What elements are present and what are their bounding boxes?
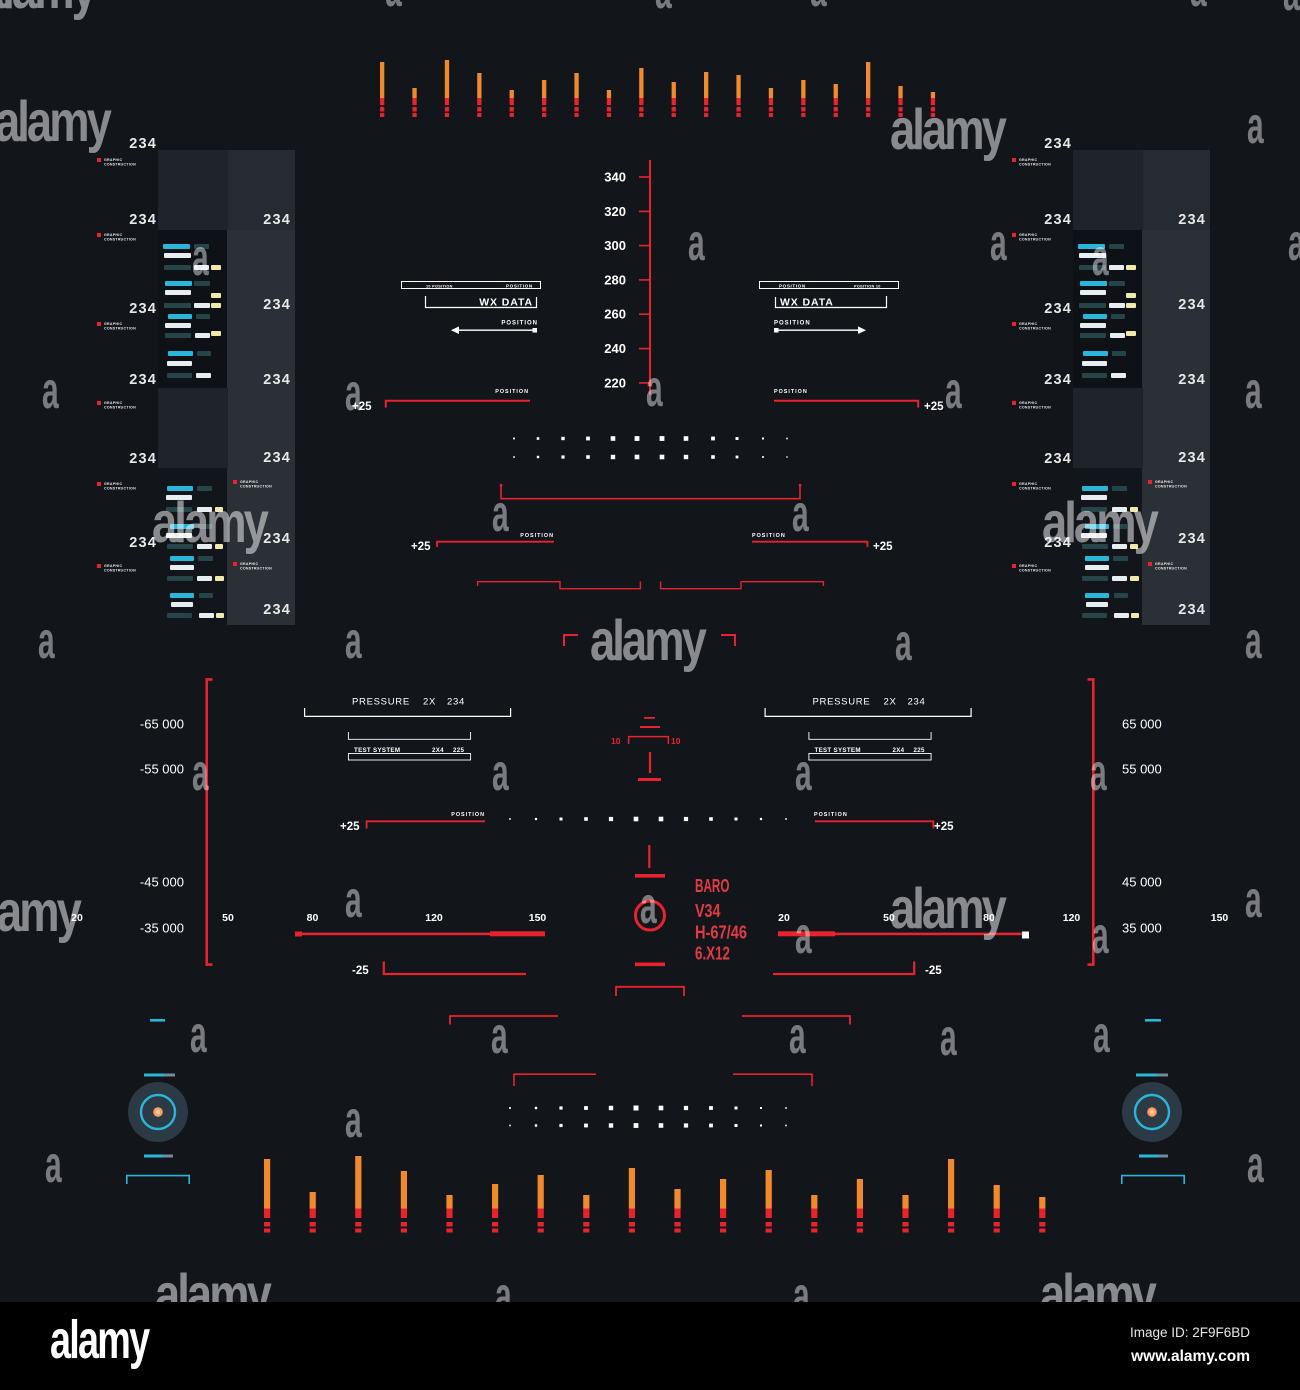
- svg-text:a: a: [345, 870, 362, 928]
- svg-text:CONSTRUCTION: CONSTRUCTION: [104, 238, 136, 242]
- svg-text:2X: 2X: [423, 697, 436, 708]
- svg-text:CONSTRUCTION: CONSTRUCTION: [240, 485, 272, 489]
- svg-text:65 000: 65 000: [1122, 717, 1162, 732]
- svg-text:a: a: [42, 361, 59, 419]
- svg-text:alamy: alamy: [590, 608, 707, 672]
- svg-text:50: 50: [222, 912, 234, 924]
- svg-text:a: a: [192, 743, 209, 801]
- svg-text:+25: +25: [411, 541, 431, 553]
- svg-text:POSITION: POSITION: [752, 533, 786, 539]
- svg-text:a: a: [655, 0, 672, 19]
- svg-text:PRESSURE: PRESSURE: [352, 697, 410, 708]
- svg-text:120: 120: [425, 912, 443, 924]
- svg-text:234: 234: [129, 372, 157, 388]
- svg-text:CONSTRUCTION: CONSTRUCTION: [104, 487, 136, 491]
- svg-text:a: a: [1092, 906, 1109, 964]
- svg-text:BARO: BARO: [695, 876, 730, 896]
- svg-text:a: a: [1190, 0, 1207, 17]
- svg-text:POSITION: POSITION: [501, 321, 538, 327]
- svg-text:a: a: [940, 1008, 957, 1066]
- svg-text:a: a: [1245, 611, 1262, 669]
- svg-text:300: 300: [604, 238, 626, 253]
- svg-text:alamy: alamy: [0, 879, 82, 943]
- svg-text:a: a: [646, 359, 663, 417]
- svg-text:a: a: [345, 611, 362, 669]
- svg-text:WX DATA: WX DATA: [780, 297, 834, 309]
- svg-text:GRAPHIC: GRAPHIC: [104, 482, 122, 486]
- svg-text:234: 234: [263, 531, 291, 547]
- svg-text:a: a: [492, 743, 509, 801]
- svg-text:2X: 2X: [884, 697, 897, 708]
- svg-text:a: a: [895, 613, 912, 671]
- svg-text:a: a: [1288, 213, 1300, 271]
- svg-text:GRAPHIC: GRAPHIC: [240, 480, 258, 484]
- svg-text:CONSTRUCTION: CONSTRUCTION: [240, 567, 272, 571]
- svg-text:234: 234: [447, 697, 465, 708]
- svg-text:GRAPHIC: GRAPHIC: [104, 233, 122, 237]
- svg-text:225: 225: [453, 747, 464, 754]
- svg-text:TEST SYSTEM: TEST SYSTEM: [354, 747, 400, 754]
- svg-text:www.alamy.com: www.alamy.com: [1130, 1348, 1250, 1365]
- svg-text:80: 80: [307, 912, 319, 924]
- svg-text:a: a: [795, 743, 812, 801]
- svg-text:CONSTRUCTION: CONSTRUCTION: [104, 327, 136, 331]
- svg-text:alamy: alamy: [0, 0, 97, 20]
- svg-text:234: 234: [263, 212, 291, 228]
- svg-text:340: 340: [604, 170, 626, 185]
- svg-text:+25: +25: [934, 821, 954, 833]
- svg-text:+25: +25: [924, 401, 944, 413]
- svg-text:+25: +25: [340, 821, 360, 833]
- svg-text:35 000: 35 000: [1122, 921, 1162, 936]
- svg-text:234: 234: [263, 372, 291, 388]
- svg-text:a: a: [1093, 1005, 1110, 1063]
- svg-text:2X4: 2X4: [893, 747, 905, 754]
- svg-text:POSITION: POSITION: [814, 812, 848, 818]
- svg-text:WX DATA: WX DATA: [479, 297, 533, 309]
- svg-text:a: a: [345, 363, 362, 421]
- svg-text:a: a: [385, 0, 402, 17]
- svg-text:POSITION 10: POSITION 10: [854, 285, 881, 289]
- svg-text:320: 320: [604, 204, 626, 219]
- svg-text:POSITION: POSITION: [506, 284, 533, 289]
- svg-text:+25: +25: [873, 541, 893, 553]
- svg-text:-25: -25: [352, 965, 369, 977]
- svg-text:260: 260: [604, 307, 626, 322]
- svg-text:-35 000: -35 000: [140, 921, 184, 936]
- svg-text:234: 234: [263, 297, 291, 313]
- svg-text:a: a: [810, 0, 827, 17]
- svg-text:alamy: alamy: [152, 490, 269, 554]
- svg-text:GRAPHIC: GRAPHIC: [104, 322, 122, 326]
- svg-text:234: 234: [129, 301, 157, 317]
- svg-text:234: 234: [129, 212, 157, 228]
- svg-text:280: 280: [604, 272, 626, 287]
- svg-text:POSITION: POSITION: [495, 389, 529, 395]
- svg-text:55 000: 55 000: [1122, 762, 1162, 777]
- svg-text:a: a: [192, 228, 209, 286]
- svg-text:a: a: [1092, 228, 1109, 286]
- svg-text:-45 000: -45 000: [140, 875, 184, 890]
- svg-text:alamy: alamy: [890, 876, 1007, 940]
- svg-text:Image ID: 2F9F6BD: Image ID: 2F9F6BD: [1130, 1325, 1250, 1340]
- svg-text:TEST SYSTEM: TEST SYSTEM: [815, 747, 861, 754]
- svg-text:-25: -25: [925, 965, 942, 977]
- svg-text:a: a: [1245, 361, 1262, 419]
- svg-text:234: 234: [908, 697, 926, 708]
- svg-text:a: a: [491, 1006, 508, 1064]
- svg-text:a: a: [640, 876, 657, 934]
- svg-text:150: 150: [529, 912, 547, 924]
- svg-text:a: a: [1090, 743, 1107, 801]
- svg-text:a: a: [1247, 96, 1264, 154]
- svg-text:POSITION: POSITION: [520, 533, 554, 539]
- svg-text:234: 234: [129, 136, 157, 152]
- svg-text:225: 225: [914, 747, 925, 754]
- svg-text:CONSTRUCTION: CONSTRUCTION: [104, 163, 136, 167]
- svg-text:GRAPHIC: GRAPHIC: [240, 562, 258, 566]
- svg-text:a: a: [492, 484, 509, 542]
- svg-text:6.X12: 6.X12: [695, 944, 730, 964]
- svg-text:CONSTRUCTION: CONSTRUCTION: [104, 406, 136, 410]
- svg-text:V34: V34: [695, 901, 721, 921]
- svg-text:POSITION: POSITION: [774, 389, 808, 395]
- svg-text:234: 234: [263, 450, 291, 466]
- svg-text:a: a: [345, 1090, 362, 1148]
- svg-text:GRAPHIC: GRAPHIC: [104, 158, 122, 162]
- svg-text:alamy: alamy: [890, 97, 1007, 161]
- svg-text:10: 10: [611, 736, 621, 746]
- svg-text:234: 234: [263, 602, 291, 618]
- svg-text:a: a: [792, 484, 809, 542]
- svg-text:alamy: alamy: [0, 89, 112, 153]
- svg-text:20: 20: [778, 912, 790, 924]
- svg-text:H-67/46: H-67/46: [695, 923, 747, 943]
- svg-text:120: 120: [1063, 912, 1081, 924]
- svg-text:a: a: [795, 906, 812, 964]
- svg-text:a: a: [1245, 870, 1262, 928]
- svg-text:a: a: [190, 1005, 207, 1063]
- svg-text:PRESSURE: PRESSURE: [813, 697, 871, 708]
- svg-text:alamy: alamy: [50, 1309, 150, 1369]
- svg-text:GRAPHIC: GRAPHIC: [104, 401, 122, 405]
- svg-text:45 000: 45 000: [1122, 875, 1162, 890]
- svg-text:alamy: alamy: [1042, 490, 1159, 554]
- svg-text:a: a: [945, 361, 962, 419]
- svg-text:a: a: [1247, 1135, 1264, 1193]
- svg-text:10 POSITION: 10 POSITION: [426, 285, 453, 289]
- svg-text:a: a: [38, 611, 55, 669]
- svg-text:POSITION: POSITION: [774, 321, 811, 327]
- svg-text:150: 150: [1211, 912, 1229, 924]
- svg-text:a: a: [789, 1006, 806, 1064]
- svg-text:a: a: [45, 1135, 62, 1193]
- svg-text:POSITION: POSITION: [779, 284, 806, 289]
- svg-text:a: a: [1283, 0, 1300, 21]
- svg-text:a: a: [990, 213, 1007, 271]
- svg-text:220: 220: [604, 375, 626, 390]
- svg-text:10: 10: [671, 736, 681, 746]
- svg-text:234: 234: [129, 451, 157, 467]
- svg-text:a: a: [688, 213, 705, 271]
- svg-text:POSITION: POSITION: [451, 812, 485, 818]
- svg-text:2X4: 2X4: [432, 747, 444, 754]
- svg-text:CONSTRUCTION: CONSTRUCTION: [104, 569, 136, 573]
- svg-text:240: 240: [604, 341, 626, 356]
- svg-text:-55 000: -55 000: [140, 762, 184, 777]
- svg-text:GRAPHIC: GRAPHIC: [104, 564, 122, 568]
- svg-text:-65 000: -65 000: [140, 717, 184, 732]
